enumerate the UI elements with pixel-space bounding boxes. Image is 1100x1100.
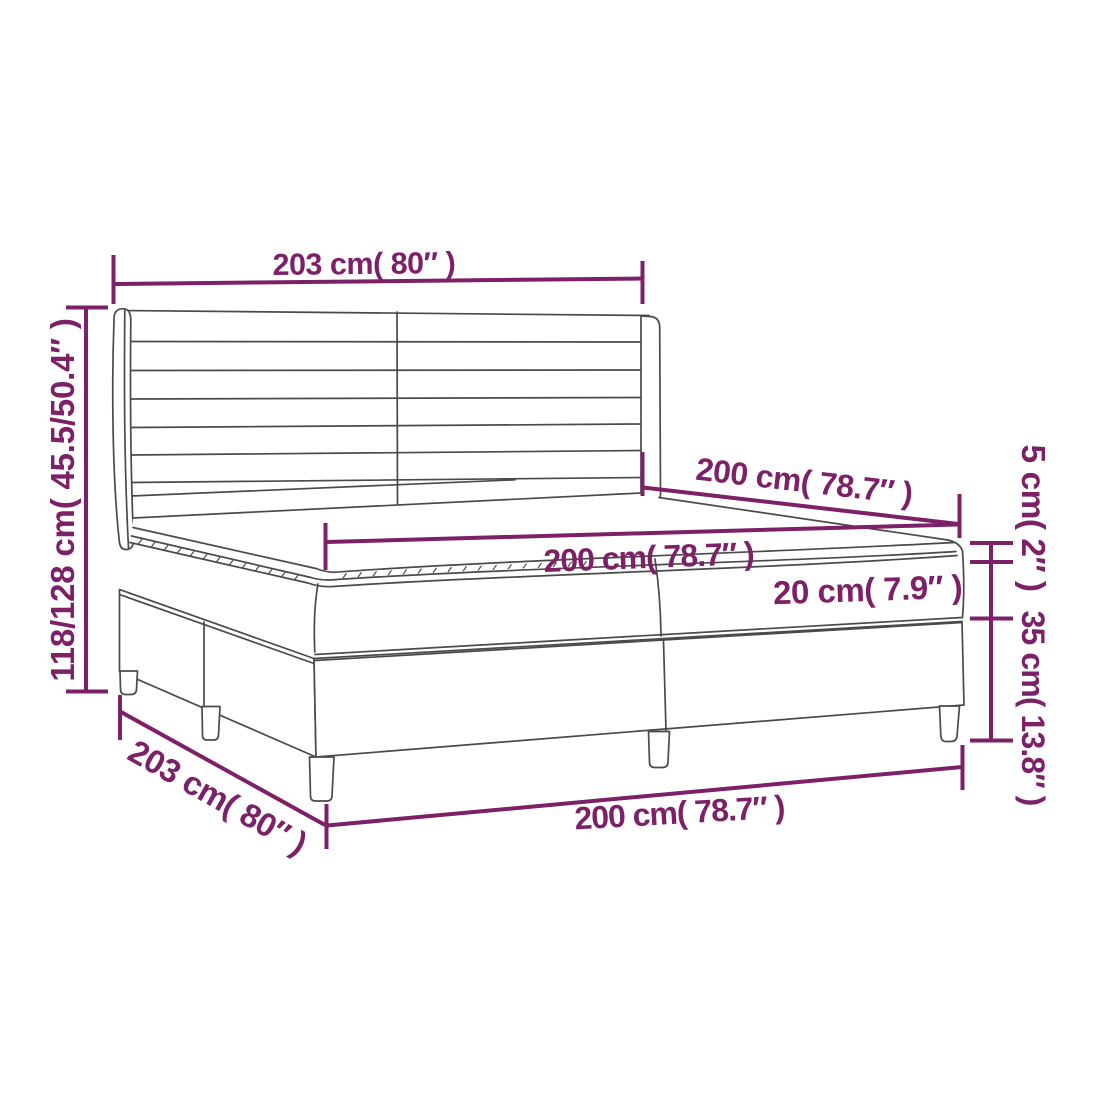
svg-text:200 cm( 78.7″ ): 200 cm( 78.7″ ) xyxy=(694,451,914,512)
svg-text:200 cm( 78.7″ ): 200 cm( 78.7″ ) xyxy=(573,788,785,836)
svg-text:35 cm( 13.8″ ): 35 cm( 13.8″ ) xyxy=(1015,611,1051,806)
svg-text:5 cm( 2″ ): 5 cm( 2″ ) xyxy=(1014,445,1051,592)
svg-text:203 cm( 80″ ): 203 cm( 80″ ) xyxy=(122,732,313,862)
svg-text:118/128 cm( 45.5/50.4″ ): 118/128 cm( 45.5/50.4″ ) xyxy=(44,318,81,681)
svg-text:203 cm( 80″ ): 203 cm( 80″ ) xyxy=(272,246,455,282)
svg-text:20 cm( 7.9″ ): 20 cm( 7.9″ ) xyxy=(772,568,962,612)
